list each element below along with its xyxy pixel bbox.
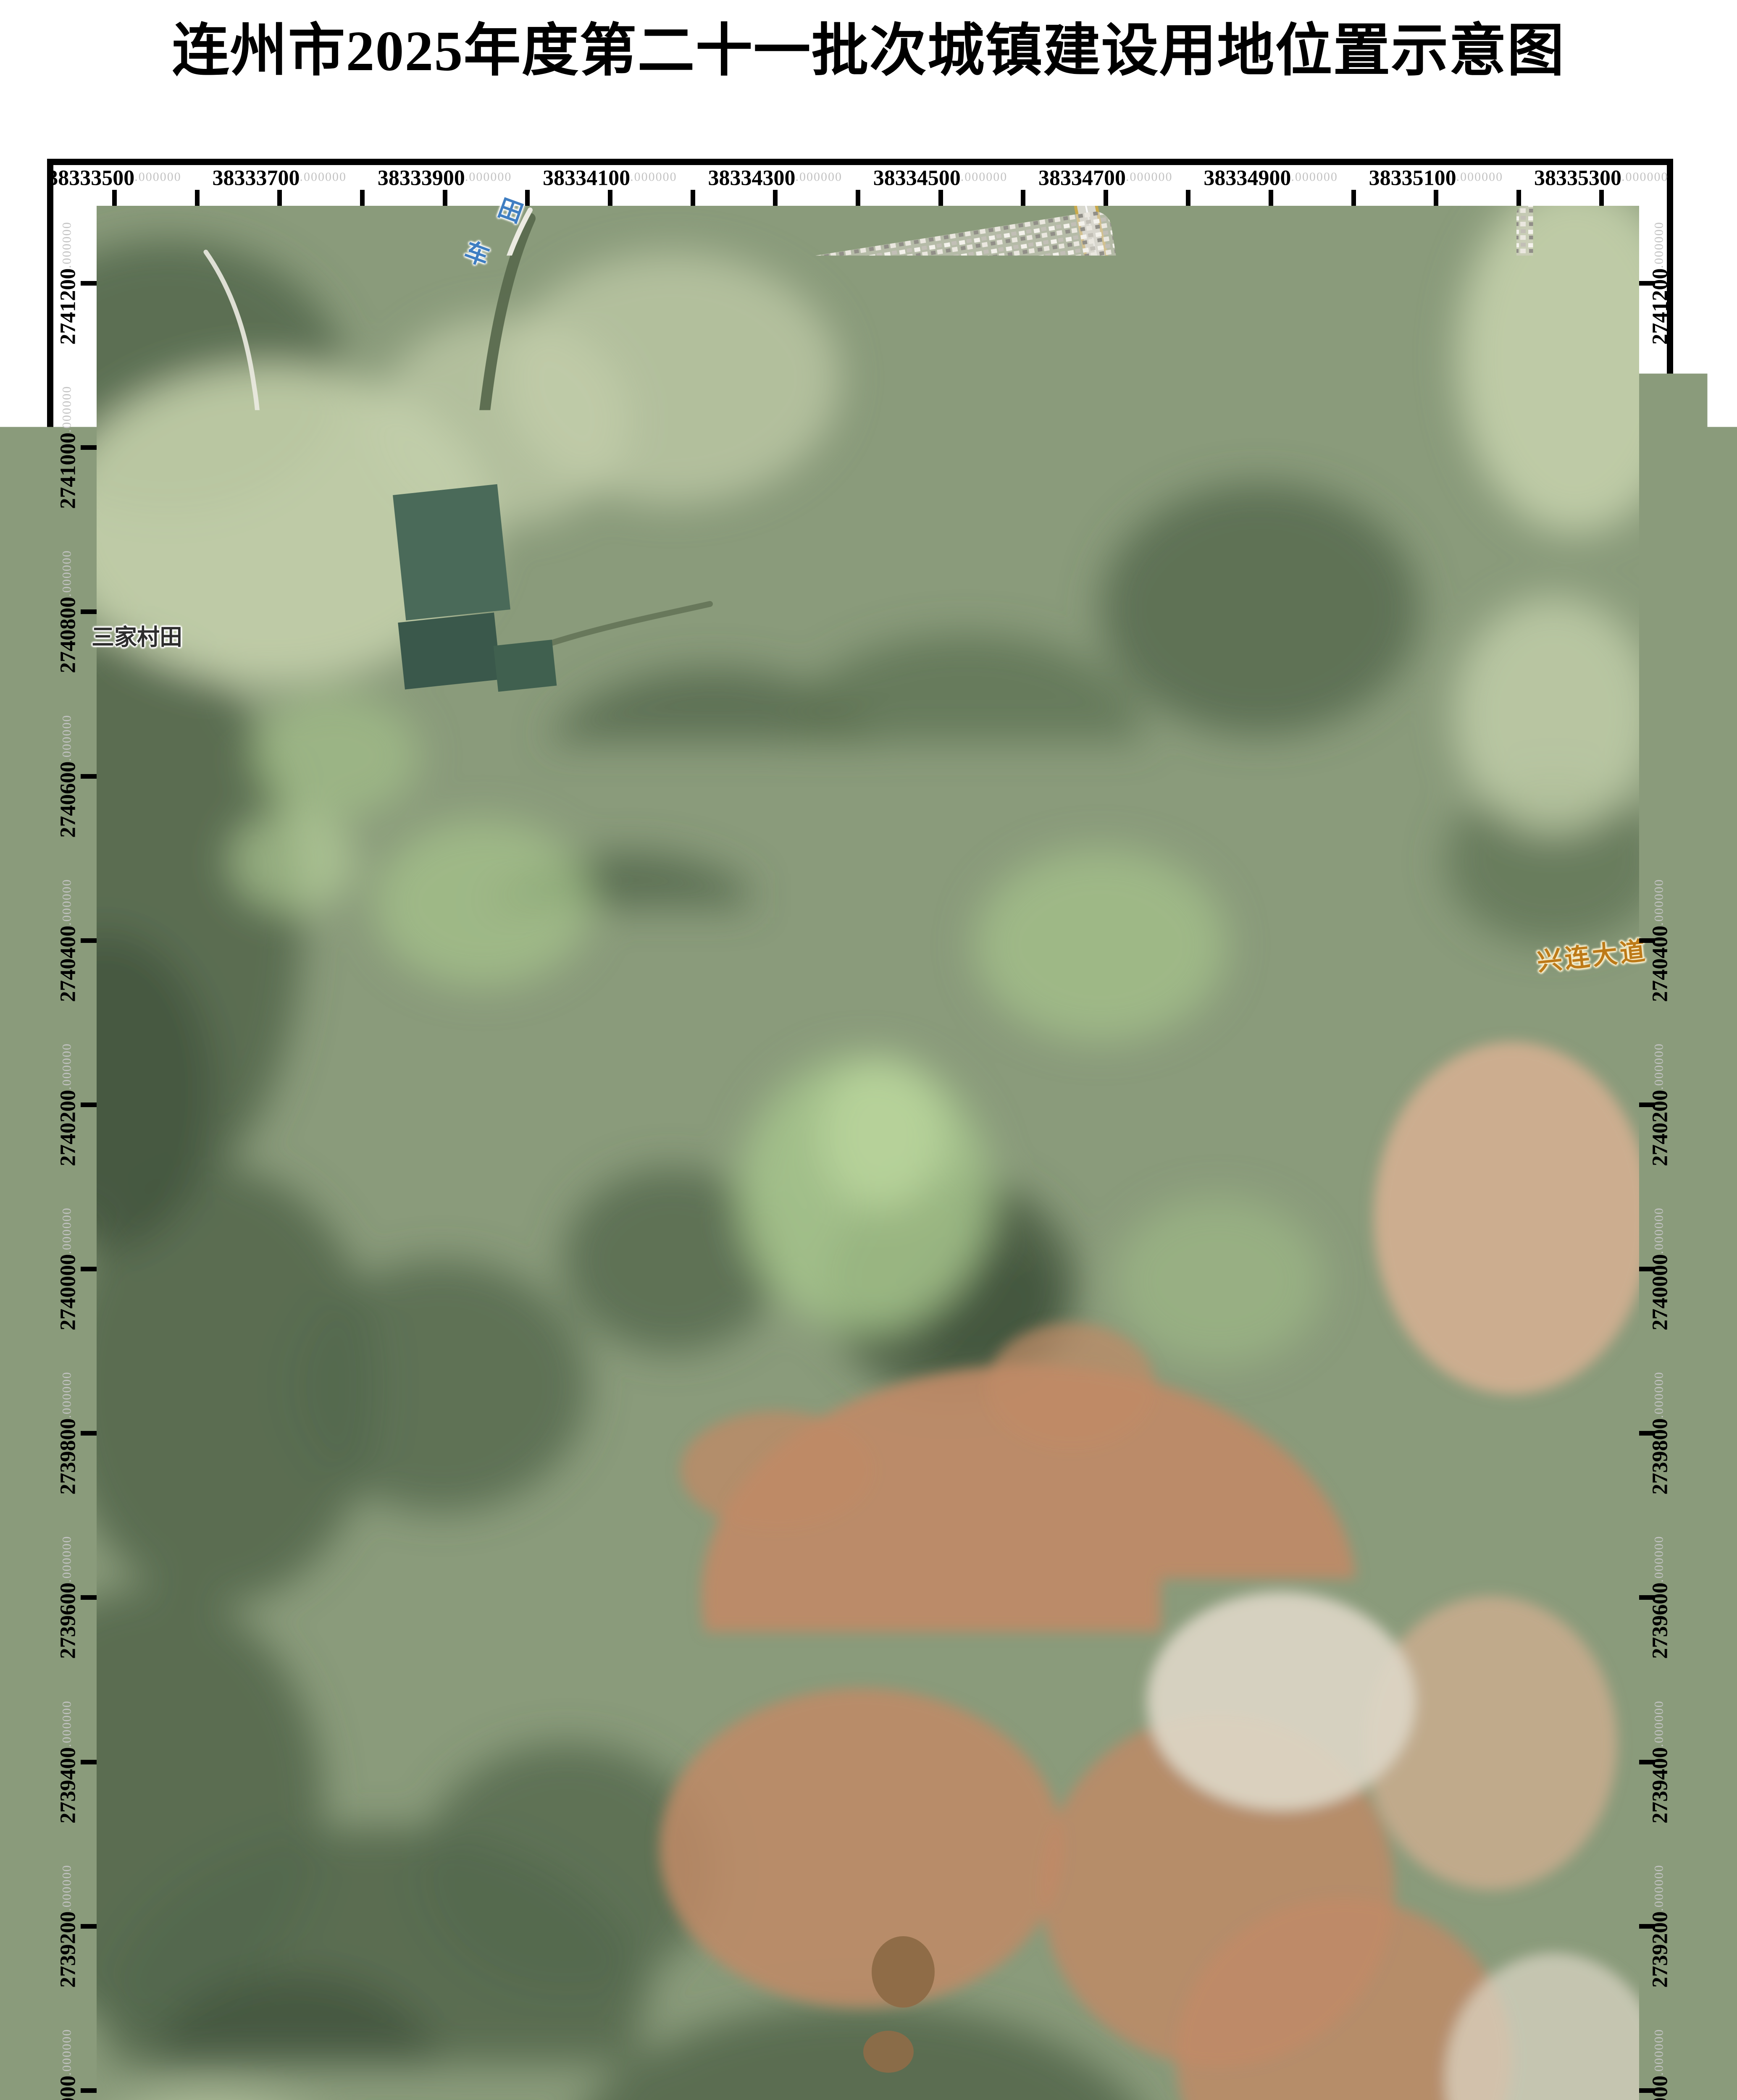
grid-tick-right [1639, 1760, 1655, 1764]
grid-tick-right [1639, 609, 1655, 614]
village-label-xuwu: 徐屋 [234, 1250, 279, 1283]
grid-tick-top [1599, 190, 1604, 206]
easting-label-top: 38335300.000000 [1534, 166, 1669, 191]
north-arrow: N [1549, 205, 1635, 379]
page-title: 连州市2025年度第二十一批次城镇建设用地位置示意图 [0, 4, 1737, 87]
north-letter: N [1549, 202, 1635, 260]
grid-tick-top [856, 190, 860, 206]
grid-tick-right [1639, 938, 1655, 943]
northing-label-left: 2740200.000000 [56, 1043, 81, 1166]
peak-icon: ▲ [537, 943, 558, 967]
grid-tick-right [1639, 281, 1655, 286]
g323-road-shield: G323 [1065, 336, 1111, 359]
northing-label-left: 2739200.000000 [56, 1864, 81, 1988]
grid-tick-top [773, 190, 778, 206]
grid-tick-left [81, 938, 97, 943]
peak-label-tianxinjiangshan: ▲ 田心江山 [394, 815, 505, 845]
village-label-jiangxiazhen: 江下圳 [562, 623, 631, 656]
grid-tick-right [1639, 774, 1655, 779]
legend-box: 图例 报批范围线 [112, 2002, 519, 2100]
northing-label-left: 2739000.000000 [56, 2029, 81, 2100]
northing-label-left: 2739400.000000 [56, 1700, 81, 1824]
easting-label-top: 38333900.000000 [378, 166, 512, 191]
grid-tick-top [277, 190, 282, 206]
map-sheet: 连州市2025年度第二十一批次城镇建设用地位置示意图 [0, 0, 1737, 2100]
g323-road-shield: G323 [1373, 825, 1418, 848]
easting-label-top: 38334500.000000 [873, 166, 1008, 191]
grid-tick-right [1639, 1102, 1655, 1107]
grid-tick-left [81, 1267, 97, 1271]
grid-tick-top [691, 190, 695, 206]
road-label-gaodui: 高堆路 [919, 354, 995, 394]
easting-label-top: 38334300.000000 [708, 166, 842, 191]
parcel-callout: 地块1 [464, 1024, 644, 1114]
northing-label-left: 2740600.000000 [56, 714, 81, 838]
grid-tick-top [1269, 190, 1273, 206]
northing-label-left: 2740400.000000 [56, 879, 81, 1002]
northing-label-left: 2740800.000000 [56, 550, 81, 674]
legend-title: 图例 [136, 2006, 307, 2100]
peak-icon: ▲ [394, 820, 415, 843]
grid-tick-right [1639, 445, 1655, 450]
grid-tick-top [1434, 190, 1438, 206]
grid-tick-top [112, 190, 117, 206]
grid-tick-right [1639, 1924, 1655, 1929]
northing-label-left: 2741000.000000 [56, 386, 81, 509]
easting-label-top: 38333700.000000 [213, 166, 347, 191]
village-label-sanjiacuntian: 三家村田 [92, 619, 182, 652]
grid-tick-left [81, 1102, 97, 1107]
grid-tick-left [81, 609, 97, 614]
peak-label-guitouling: ▲ 龟头岭 [556, 1268, 645, 1298]
north-arrow-icon [1549, 253, 1635, 379]
peak-icon: ▲ [556, 1273, 577, 1297]
grid-tick-top [1516, 190, 1521, 206]
easting-label-top: 38334900.000000 [1204, 166, 1338, 191]
grid-tick-left [81, 445, 97, 450]
grid-tick-left [81, 281, 97, 286]
grid-tick-top [1186, 190, 1190, 206]
easting-label-top: 38335100.000000 [1369, 166, 1503, 191]
grid-tick-right [1639, 1431, 1655, 1436]
northing-label-left: 2741200.000000 [56, 221, 81, 345]
grid-tick-right [1639, 1595, 1655, 1600]
northing-label-left: 2739800.000000 [56, 1371, 81, 1495]
grid-tick-left [81, 1924, 97, 1929]
grid-tick-top [1021, 190, 1025, 206]
grid-tick-left [81, 2088, 97, 2093]
village-label-feielingcun: 飞鹅岭村 [978, 1990, 1069, 2024]
easting-label-top: 38333500.000000 [47, 166, 181, 191]
grid-tick-top [443, 190, 447, 206]
grid-tick-left [81, 1431, 97, 1436]
parcel-callout-label: 地块1 [469, 1029, 639, 1110]
grid-tick-top [938, 190, 943, 206]
grid-tick-top [1104, 190, 1108, 206]
grid-tick-left [81, 1595, 97, 1600]
grid-tick-right [1639, 1267, 1655, 1271]
northing-label-left: 2739600.000000 [56, 1536, 81, 1659]
peak-label-dongweishan: ▲ 东尾山 [537, 938, 627, 969]
northing-label-left: 2740000.000000 [56, 1207, 81, 1331]
grid-tick-top [525, 190, 530, 206]
grid-tick-left [81, 774, 97, 779]
grid-tick-left [81, 1760, 97, 1764]
grid-tick-top [360, 190, 365, 206]
easting-label-top: 38334100.000000 [543, 166, 677, 191]
grid-tick-top [608, 190, 612, 206]
easting-label-top: 38334700.000000 [1038, 166, 1173, 191]
village-label-dengwucun: 邓屋村 [96, 1111, 164, 1144]
grid-tick-top [1351, 190, 1356, 206]
village-label-tangdongwancun: 塘东湾村 [1479, 522, 1570, 555]
grid-tick-top [195, 190, 200, 206]
grid-tick-right [1639, 2088, 1655, 2093]
